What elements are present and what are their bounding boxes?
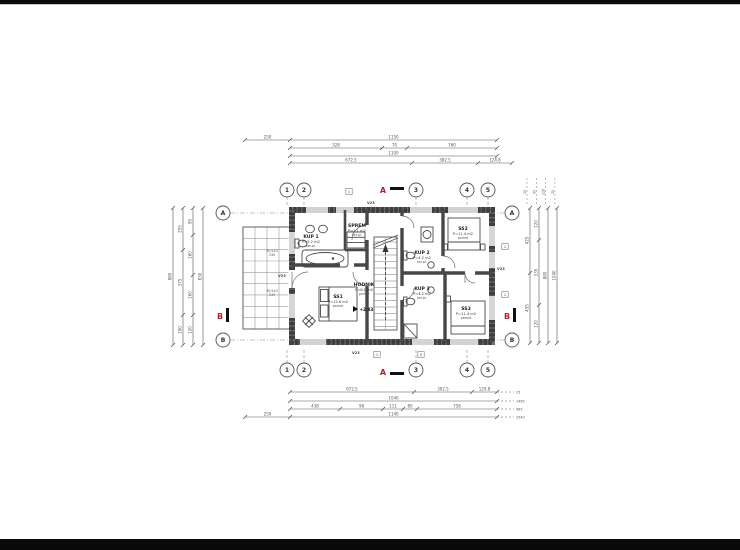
dimension-label: 250 — [264, 411, 272, 416]
dimension-label: 1150 — [388, 134, 399, 139]
opening-label: V23 — [497, 267, 505, 271]
dimension-label: 375 — [177, 278, 182, 286]
room-floor: ker.pl. — [306, 244, 316, 248]
dimension-label: 335 — [533, 268, 538, 276]
section-marker-label: A — [380, 186, 387, 195]
window-spec: 240 — [269, 253, 275, 257]
window-spec: 240 — [269, 293, 275, 297]
window-tag-number: 1 — [348, 190, 350, 194]
opening-label: V23 — [352, 351, 360, 355]
dimension-chains: 2501150328707601100672.5382.5124.8672.53… — [167, 134, 559, 419]
axis-bubble-label: 1 — [285, 187, 289, 194]
room-floor: ker.pl. — [417, 260, 427, 264]
dimension-label: 382.5 — [439, 157, 451, 162]
dimension-label: 672.5 — [346, 386, 358, 391]
room-floor: ker.pl. — [352, 233, 362, 237]
shower-icon — [404, 324, 417, 338]
axis-bubble-label: 3 — [414, 367, 418, 374]
dimension-label: 190 — [177, 326, 182, 334]
toilet-icon — [404, 297, 415, 306]
sink-icon — [306, 225, 328, 233]
axis-bubble-label: 5 — [486, 187, 490, 194]
washer-icon — [421, 227, 433, 242]
dimension-mark: 120 — [542, 189, 546, 195]
dimension-total: 2540 — [516, 415, 525, 419]
dimension-label: 1100 — [388, 150, 399, 155]
dimension-label: 672.5 — [345, 157, 357, 162]
section-cut-line — [390, 187, 404, 190]
dimension-label: 98 — [359, 403, 365, 408]
axis-bubble-label: A — [221, 210, 226, 217]
dimension-total: 1465 — [516, 399, 525, 403]
axis-bubble-label: B — [510, 337, 515, 344]
dimension-label: 760 — [448, 142, 456, 147]
sink-icon — [428, 262, 434, 268]
dimension-label: 95 — [187, 219, 192, 225]
room-floor: parket — [359, 292, 370, 296]
floor-plan-drawing: 2501150328707601100672.5382.5124.8672.53… — [0, 0, 740, 550]
axis-bubble-label: 2 — [302, 367, 306, 374]
dimension-label: 250 — [264, 134, 272, 139]
dimension-total: 25 — [516, 390, 520, 394]
dimension-label: 880 — [167, 272, 172, 280]
dimension-label: 255 — [177, 225, 182, 233]
dimension-total: 465 — [516, 407, 522, 411]
window-tag-number: 1 — [504, 245, 506, 249]
dimension-label: 120 — [533, 220, 538, 228]
dimension-label: 758 — [453, 403, 461, 408]
dimension-label: 425 — [524, 236, 529, 244]
dimension-label: 160 — [187, 251, 192, 259]
dimension-mark: 25 — [551, 190, 555, 194]
dimension-label: 455 — [524, 304, 529, 312]
door-symbol-diamond — [303, 315, 316, 328]
dimension-label: 1040 — [551, 270, 556, 281]
letterbox-bottom — [0, 539, 740, 550]
floor-plan-page: 2501150328707601100672.5382.5124.8672.53… — [0, 0, 740, 550]
section-cut-line — [226, 308, 229, 322]
dimension-label: 120 — [187, 326, 192, 334]
dimension-label: 392.5 — [437, 386, 449, 391]
dimension-label: 129.8 — [479, 386, 491, 391]
window-tag-number: 1 — [504, 293, 506, 297]
level-mark: +2.83 — [360, 307, 374, 312]
section-marker-label: A — [380, 368, 387, 377]
window-tag-number: 1 — [376, 353, 378, 357]
window-tag-number: 5 — [420, 353, 422, 357]
section-marker-label: B — [217, 312, 223, 321]
dimension-label: 124.8 — [489, 157, 501, 162]
dimension-label: 830 — [197, 272, 202, 280]
dimension-label: 1140 — [388, 411, 399, 416]
dimension-label: 70 — [392, 142, 398, 147]
dimension-label: 1040 — [388, 395, 399, 400]
staircase — [373, 235, 398, 330]
opening-label: V23 — [367, 201, 375, 205]
room-floor: ker.pl. — [417, 296, 427, 300]
dimension-label: 438 — [311, 403, 319, 408]
section-marker-label: B — [504, 312, 510, 321]
axis-bubble-label: 1 — [285, 367, 289, 374]
room-floor: parket — [458, 236, 469, 240]
dimension-label: 880 — [542, 271, 547, 279]
dimension-label: 328 — [332, 142, 340, 147]
dimension-mark: 95 — [532, 190, 536, 194]
room-floor: parket — [333, 304, 344, 308]
dimension-mark: 25 — [523, 190, 527, 194]
dimension-label: 120 — [533, 320, 538, 328]
section-cut-line — [390, 372, 404, 375]
letterbox-top — [0, 0, 740, 5]
dimension-label: 160 — [187, 291, 192, 299]
axis-bubble-label: A — [510, 210, 515, 217]
terrace-grid — [243, 227, 291, 329]
axis-bubble-label: 4 — [465, 187, 469, 194]
axis-bubble-label: 5 — [486, 367, 490, 374]
axis-bubble-label: 4 — [465, 367, 469, 374]
axis-bubble-label: 2 — [302, 187, 306, 194]
axis-bubble-label: B — [221, 337, 226, 344]
dimension-label: 111 — [389, 403, 397, 408]
dimension-label: 80 — [407, 403, 413, 408]
axis-bubble-label: 3 — [414, 187, 418, 194]
opening-label: V23 — [278, 274, 286, 278]
section-cut-line — [513, 308, 516, 322]
room-floor: parket — [461, 316, 472, 320]
